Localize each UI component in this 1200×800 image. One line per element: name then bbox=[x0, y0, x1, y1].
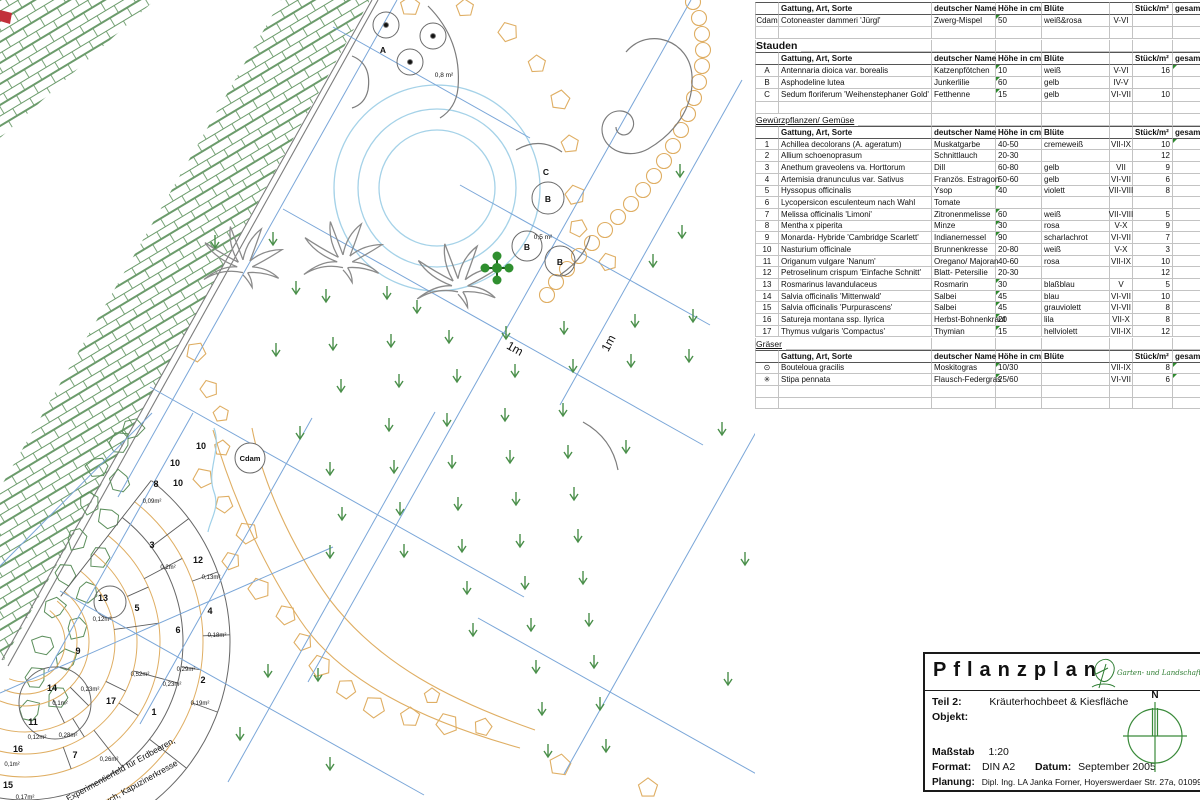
table-cell: B bbox=[755, 77, 779, 89]
format-label: Format: bbox=[932, 761, 971, 773]
table-cell: Salvia officinalis 'Purpurascens' bbox=[779, 302, 932, 314]
table-cell: Lycopersicon esculenteum nach Wahl bbox=[779, 197, 932, 209]
table-row bbox=[755, 386, 1200, 398]
table-cell bbox=[1110, 386, 1133, 398]
table-cell: Zitronenmelisse bbox=[932, 209, 996, 221]
north-label: N bbox=[1151, 690, 1158, 701]
bed-section-number: 6 bbox=[175, 625, 180, 635]
table-cell bbox=[1042, 338, 1110, 350]
table-cell bbox=[1042, 102, 1110, 114]
table-cell: 2 bbox=[1173, 232, 1200, 244]
table-cell: VII-VIII bbox=[1110, 209, 1133, 221]
table-cell: Herbst-Bohnenkraut bbox=[932, 314, 996, 326]
table-cell: 12 bbox=[1133, 267, 1173, 279]
table-cell: cremeweiß bbox=[1042, 139, 1110, 151]
bed-section-number: 13 bbox=[98, 593, 108, 603]
bed-area-label: 0,18m² bbox=[208, 633, 227, 639]
brick-wall-top-left bbox=[0, 0, 155, 138]
table-cell: gesamt bbox=[1173, 126, 1200, 139]
table-cell bbox=[1133, 102, 1173, 114]
table-cell bbox=[996, 338, 1042, 350]
table-cell: Brunnenkresse bbox=[932, 244, 996, 256]
table-cell bbox=[1042, 114, 1110, 126]
table-cell: 3 bbox=[1133, 244, 1173, 256]
plant-letter-label: A bbox=[380, 45, 386, 55]
table-section: StaudenGattung, Art, Sortedeutscher Name… bbox=[755, 40, 1200, 114]
table-cell bbox=[755, 398, 779, 410]
table-cell: blau bbox=[1042, 291, 1110, 303]
table-cell: Salbei bbox=[932, 291, 996, 303]
table-cell: gelb bbox=[1042, 89, 1110, 101]
garden-plan-drawing: Cdam 810101031213564914172111167150,09m²… bbox=[0, 0, 755, 800]
table-cell bbox=[779, 398, 932, 410]
table-cell: Höhe in cm bbox=[996, 350, 1042, 363]
table-cell: Sedum floriferum 'Weihenstephaner Gold' bbox=[779, 89, 932, 101]
table-cell: gelb bbox=[1042, 162, 1110, 174]
table-cell: 10 bbox=[755, 244, 779, 256]
table-cell bbox=[1110, 338, 1133, 350]
table-cell bbox=[755, 102, 779, 114]
table-cell: deutscher Name bbox=[932, 350, 996, 363]
table-cell bbox=[996, 398, 1042, 410]
table-cell: Blüte bbox=[1042, 126, 1110, 139]
table-cell: 5 bbox=[1133, 209, 1173, 221]
table-cell: 40-60 bbox=[996, 256, 1042, 268]
table-cell bbox=[1110, 27, 1133, 39]
table-cell bbox=[1110, 102, 1133, 114]
table-cell bbox=[1042, 398, 1110, 410]
table-cell: 13 bbox=[755, 279, 779, 291]
table-cell: 10 bbox=[996, 65, 1042, 77]
table-row: CSedum floriferum 'Weihenstephaner Gold'… bbox=[755, 89, 1200, 101]
table-cell: Stück/m² bbox=[1133, 350, 1173, 363]
bed-area-label: 0,2m² bbox=[160, 565, 175, 571]
table-cell: Tomate bbox=[932, 197, 996, 209]
table-cell: VI-VII bbox=[1110, 89, 1133, 101]
table-cell: Satureja montana ssp. Ilyrica bbox=[779, 314, 932, 326]
table-cell: 10 bbox=[1133, 256, 1173, 268]
table-cell: 5 bbox=[755, 186, 779, 198]
stream-line bbox=[208, 428, 216, 532]
table-cell: 3 bbox=[1173, 244, 1200, 256]
table-row: 6Lycopersicon esculenteum nach WahlTomat… bbox=[755, 197, 1200, 209]
dimension-1m-label: 1m bbox=[504, 338, 525, 358]
table-cell: V bbox=[1110, 279, 1133, 291]
table-cell: Achillea decolorans (A. ageratum) bbox=[779, 139, 932, 151]
table-cell: 8 bbox=[1133, 186, 1173, 198]
table-cell: VI-VII bbox=[1110, 232, 1133, 244]
table-cell: VII-IX bbox=[1110, 256, 1133, 268]
table-cell bbox=[1042, 267, 1110, 279]
table-cell: 10 bbox=[1133, 139, 1173, 151]
bed-section-number: 14 bbox=[47, 683, 57, 693]
table-cell: Origanum vulgare 'Nanum' bbox=[779, 256, 932, 268]
table-cell: Salvia officinalis 'Mittenwald' bbox=[779, 291, 932, 303]
table-cell bbox=[1173, 27, 1200, 39]
table-section-title: Gräser bbox=[756, 338, 786, 350]
table-cell: V-VI bbox=[1110, 15, 1133, 27]
table-cell: 9 bbox=[1133, 162, 1173, 174]
table-cell: VI-VII bbox=[1110, 291, 1133, 303]
table-cell bbox=[1110, 267, 1133, 279]
table-cell: 40-50 bbox=[996, 139, 1042, 151]
table-cell bbox=[932, 102, 996, 114]
table-section-title: Stauden bbox=[756, 40, 801, 52]
table-cell: 1 bbox=[1173, 279, 1200, 291]
table-cell: ✳ bbox=[755, 374, 779, 386]
pflanzplan-page: Cdam 810101031213564914172111167150,09m²… bbox=[0, 0, 1200, 800]
table-row: 3Anethum graveolens va. HorttorumDill60-… bbox=[755, 162, 1200, 174]
dimension-1m-label: 1m bbox=[598, 332, 618, 353]
table-cell bbox=[1110, 126, 1133, 139]
table-cell: Rosmarinus lavandulaceus bbox=[779, 279, 932, 291]
table-cell: Petroselinum crispum 'Einfache Schnitt' bbox=[779, 267, 932, 279]
table-cell: Salbei bbox=[932, 302, 996, 314]
table-cell: rosa bbox=[1042, 221, 1110, 233]
table-cell: 40 bbox=[996, 186, 1042, 198]
table-cell: 30 bbox=[996, 221, 1042, 233]
table-cell: Junkerlilie bbox=[932, 77, 996, 89]
table-cell: Hyssopus officinalis bbox=[779, 186, 932, 198]
wall-edge-line bbox=[2, 0, 378, 666]
table-cell: Bouteloua gracilis bbox=[779, 363, 932, 375]
table-section: Gewürzpflanzen/ GemüseGattung, Art, Sort… bbox=[755, 114, 1200, 338]
table-cell bbox=[1133, 15, 1173, 27]
table-cell: 12 bbox=[755, 267, 779, 279]
table-cell: weiß bbox=[1042, 244, 1110, 256]
table-cell: Rosmarin bbox=[932, 279, 996, 291]
table-cell bbox=[1110, 52, 1133, 65]
table-cell: Stück/m² bbox=[1133, 52, 1173, 65]
table-row: 17Thymus vulgaris 'Compactus'Thymian15he… bbox=[755, 326, 1200, 338]
datum-label: Datum: bbox=[1035, 761, 1071, 773]
table-cell: V-X bbox=[1110, 221, 1133, 233]
table-cell: Blatt- Petersilie bbox=[932, 267, 996, 279]
table-cell bbox=[932, 40, 996, 52]
table-cell: 90 bbox=[996, 232, 1042, 244]
table-row: 9Monarda- Hybride 'Cambridge Scarlett'In… bbox=[755, 232, 1200, 244]
table-cell: Stipa pennata bbox=[779, 374, 932, 386]
table-cell: 3 bbox=[1173, 374, 1200, 386]
table-cell: 10 bbox=[1133, 291, 1173, 303]
bed-section-number: 16 bbox=[13, 744, 23, 754]
herb-bed-dividers bbox=[53, 480, 230, 768]
table-cell bbox=[779, 102, 932, 114]
table-cell bbox=[996, 197, 1042, 209]
table-cell: V-VI bbox=[1110, 65, 1133, 77]
table-cell: VI-VII bbox=[1110, 302, 1133, 314]
teil-row: Teil 2: Kräuterhochbeet & Kiesfläche bbox=[932, 696, 1128, 708]
table-cell bbox=[1133, 77, 1173, 89]
table-cell: violett bbox=[1042, 186, 1110, 198]
table-cell: hellviolett bbox=[1042, 326, 1110, 338]
table-cell: 1 bbox=[1173, 314, 1200, 326]
table-cell: VII-IX bbox=[1110, 363, 1133, 375]
bed-section-number: 4 bbox=[207, 606, 212, 616]
table-cell: Antennaria dioica var. borealis bbox=[779, 65, 932, 77]
bed-outline-paisley bbox=[352, 6, 692, 470]
table-cell: 16 bbox=[1133, 65, 1173, 77]
table-cell: 9 bbox=[755, 232, 779, 244]
table-cell: lila bbox=[1042, 314, 1110, 326]
table-cell: ⊙ bbox=[755, 363, 779, 375]
table-cell: Mentha x piperita bbox=[779, 221, 932, 233]
table-cell: blaßblau bbox=[1042, 279, 1110, 291]
table-cell: Nasturium officinale bbox=[779, 244, 932, 256]
brick-wall-band bbox=[0, 0, 370, 660]
table-cell: 8 bbox=[1133, 314, 1173, 326]
table-row: 10Nasturium officinaleBrunnenkresse20-80… bbox=[755, 244, 1200, 256]
plant-letter-label: B bbox=[545, 194, 551, 204]
table-cell: 3 bbox=[755, 162, 779, 174]
table-section: Gattung, Art, Sortedeutscher NameHöhe in… bbox=[755, 2, 1200, 39]
table-row: 11Origanum vulgare 'Nanum'Oregano/ Major… bbox=[755, 256, 1200, 268]
table-cell: 5 bbox=[1173, 89, 1200, 101]
table-row: 15Salvia officinalis 'Purpurascens'Salbe… bbox=[755, 302, 1200, 314]
table-cell bbox=[1042, 27, 1110, 39]
table-cell: weiß bbox=[1042, 65, 1110, 77]
table-cell: 50 bbox=[996, 15, 1042, 27]
table-cell: 1 bbox=[1173, 291, 1200, 303]
table-cell: 15 bbox=[996, 326, 1042, 338]
table-cell: VII bbox=[1110, 162, 1133, 174]
bed-area-label: 0,19m² bbox=[191, 701, 210, 707]
table-row: 14Salvia officinalis 'Mittenwald'Salbei4… bbox=[755, 291, 1200, 303]
table-cell bbox=[1042, 40, 1110, 52]
table-cell: 45 bbox=[996, 291, 1042, 303]
company-logo-icon bbox=[1086, 656, 1118, 692]
table-cell: Blüte bbox=[1042, 2, 1110, 15]
plant-letter-label: B bbox=[524, 242, 530, 252]
table-cell: 45 bbox=[996, 302, 1042, 314]
table-row: Stauden bbox=[755, 40, 1200, 52]
table-cell: A bbox=[755, 65, 779, 77]
table-cell: 2 bbox=[1173, 150, 1200, 162]
table-cell: 3 bbox=[1173, 77, 1200, 89]
table-cell: 5 bbox=[1173, 197, 1200, 209]
bed-section-number: 7 bbox=[72, 750, 77, 760]
table-cell: 2 bbox=[755, 150, 779, 162]
table-cell: Gattung, Art, Sorte bbox=[779, 350, 932, 363]
table-cell: 12 bbox=[1133, 326, 1173, 338]
table-cell bbox=[932, 338, 996, 350]
table-row: 4Artemisia dranunculus var. SativusFranz… bbox=[755, 174, 1200, 186]
table-cell: 16 bbox=[755, 314, 779, 326]
table-cell: 30 bbox=[996, 279, 1042, 291]
table-cell bbox=[1133, 27, 1173, 39]
objekt-label: Objekt: bbox=[932, 711, 968, 723]
table-cell bbox=[755, 27, 779, 39]
table-cell: 1 bbox=[755, 139, 779, 151]
bed-section-number: 1 bbox=[151, 707, 156, 717]
table-cell: gelb bbox=[1042, 77, 1110, 89]
bed-section-number: 8 bbox=[153, 479, 158, 489]
table-row bbox=[755, 102, 1200, 114]
area-note-label: 0,8 m² bbox=[435, 72, 454, 79]
table-cell: 8 bbox=[1133, 363, 1173, 375]
table-cell: gesamt bbox=[1173, 2, 1200, 15]
table-row: 16Satureja montana ssp. IlyricaHerbst-Bo… bbox=[755, 314, 1200, 326]
table-cell: Ysop bbox=[932, 186, 996, 198]
table-header-row: Gattung, Art, Sortedeutscher NameHöhe in… bbox=[755, 126, 1200, 139]
table-cell bbox=[1042, 197, 1110, 209]
table-cell: 60 bbox=[996, 77, 1042, 89]
bed-area-label: 0,12m² bbox=[28, 735, 47, 741]
table-row: Gewürzpflanzen/ Gemüse bbox=[755, 114, 1200, 126]
table-cell: C bbox=[755, 89, 779, 101]
table-cell bbox=[1173, 40, 1200, 52]
table-cell bbox=[1042, 386, 1110, 398]
bed-area-label: 0,09m² bbox=[143, 499, 162, 505]
cdam-label: Cdam bbox=[240, 454, 261, 463]
table-header-row: Gattung, Art, Sortedeutscher NameHöhe in… bbox=[755, 350, 1200, 363]
bed-section-number: 9 bbox=[75, 646, 80, 656]
table-cell: 1 bbox=[1173, 15, 1200, 27]
table-cell: 11 bbox=[755, 256, 779, 268]
table-cell bbox=[1042, 374, 1110, 386]
table-cell: V-X bbox=[1110, 244, 1133, 256]
table-cell: deutscher Name bbox=[932, 52, 996, 65]
table-cell: 2 bbox=[1173, 302, 1200, 314]
gravel-swoosh bbox=[213, 428, 535, 748]
table-row: 12Petroselinum crispum 'Einfache Schnitt… bbox=[755, 267, 1200, 279]
table-cell bbox=[1133, 197, 1173, 209]
table-cell: Französ. Estragon bbox=[932, 174, 996, 186]
table-cell bbox=[755, 386, 779, 398]
table-cell bbox=[1110, 2, 1133, 15]
table-cell: 12 bbox=[1173, 65, 1200, 77]
table-cell: 60-80 bbox=[996, 162, 1042, 174]
table-cell bbox=[1110, 350, 1133, 363]
table-cell: 2 bbox=[1173, 209, 1200, 221]
table-cell: 20 bbox=[996, 314, 1042, 326]
table-cell: Zwerg-Mispel bbox=[932, 15, 996, 27]
table-cell bbox=[1042, 150, 1110, 162]
table-cell: Gattung, Art, Sorte bbox=[779, 52, 932, 65]
table-cell: Allium schoenoprasum bbox=[779, 150, 932, 162]
table-cell: Höhe in cm bbox=[996, 52, 1042, 65]
table-cell bbox=[996, 27, 1042, 39]
table-cell: 20-30 bbox=[996, 150, 1042, 162]
bed-area-label: 0,23m² bbox=[163, 682, 182, 688]
table-cell: 60 bbox=[996, 209, 1042, 221]
table-cell: Blüte bbox=[1042, 52, 1110, 65]
table-cell: 9 bbox=[1133, 221, 1173, 233]
bed-area-label: 0,23m² bbox=[81, 687, 100, 693]
table-cell bbox=[1133, 114, 1173, 126]
table-cell: 8 bbox=[755, 221, 779, 233]
massstab-value: 1:20 bbox=[988, 746, 1008, 758]
table-cell: 15 bbox=[755, 302, 779, 314]
bed-section-number: 5 bbox=[134, 603, 139, 613]
table-cell: 10/30 bbox=[996, 363, 1042, 375]
table-cell: 7 bbox=[1133, 232, 1173, 244]
table-cell bbox=[1133, 386, 1173, 398]
table-cell: Blüte bbox=[1042, 350, 1110, 363]
table-cell: Monarda- Hybride 'Cambridge Scarlett' bbox=[779, 232, 932, 244]
table-cell bbox=[779, 386, 932, 398]
table-cell: 2 bbox=[1173, 267, 1200, 279]
table-cell: Melissa officinalis 'Limoni' bbox=[779, 209, 932, 221]
bed-area-label: 0,28m² bbox=[59, 733, 78, 739]
bed-section-number: 10 bbox=[173, 478, 183, 488]
format-value: DIN A2 bbox=[982, 761, 1015, 773]
table-row: 2Allium schoenoprasumSchnittlauch20-3012… bbox=[755, 150, 1200, 162]
bed-section-number: 17 bbox=[106, 696, 116, 706]
company-name: Garten- und Landschaftsdesign bbox=[1117, 669, 1200, 677]
table-cell: deutscher Name bbox=[932, 126, 996, 139]
table-cell: 6 bbox=[755, 197, 779, 209]
north-compass: N bbox=[1122, 688, 1200, 780]
table-cell: grauviolett bbox=[1042, 302, 1110, 314]
table-cell: 2 bbox=[1173, 162, 1200, 174]
table-cell: Katzenpfötchen bbox=[932, 65, 996, 77]
table-cell bbox=[1173, 114, 1200, 126]
table-cell bbox=[1042, 363, 1110, 375]
table-cell: Schnittlauch bbox=[932, 150, 996, 162]
table-cell bbox=[1173, 386, 1200, 398]
table-section-title: Gewürzpflanzen/ Gemüse bbox=[756, 114, 858, 126]
table-cell: 10 bbox=[1133, 89, 1173, 101]
table-cell bbox=[1173, 102, 1200, 114]
table-cell: Asphodeline lutea bbox=[779, 77, 932, 89]
table-row: ⊙Bouteloua gracilisMoskitogras10/30VII-I… bbox=[755, 363, 1200, 375]
table-cell bbox=[1110, 114, 1133, 126]
table-cell: Höhe in cm bbox=[996, 126, 1042, 139]
bed-area-label: 0,26m² bbox=[100, 757, 119, 763]
planung-label: Planung: bbox=[932, 777, 975, 788]
massstab-label: Maßstab bbox=[932, 746, 975, 758]
table-cell: 15 bbox=[996, 89, 1042, 101]
table-cell bbox=[932, 114, 996, 126]
bed-section-number: 10 bbox=[170, 458, 180, 468]
table-cell: weiß bbox=[1042, 209, 1110, 221]
table-row: 5Hyssopus officinalisYsop40violettVII-VI… bbox=[755, 186, 1200, 198]
table-cell: IV-V bbox=[1110, 77, 1133, 89]
bed-area-label: 0,29m² bbox=[177, 667, 196, 673]
table-cell: VI-VII bbox=[1110, 174, 1133, 186]
table-cell: 17 bbox=[755, 326, 779, 338]
table-cell bbox=[1173, 338, 1200, 350]
table-cell: Stück/m² bbox=[1133, 126, 1173, 139]
massstab-row: Maßstab 1:20 bbox=[932, 746, 1009, 758]
table-row: 13Rosmarinus lavandulaceusRosmarin30blaß… bbox=[755, 279, 1200, 291]
table-cell: Gattung, Art, Sorte bbox=[779, 126, 932, 139]
table-cell: Stück/m² bbox=[1133, 2, 1173, 15]
bed-section-number: 12 bbox=[193, 555, 203, 565]
table-cell: gesamt bbox=[1173, 52, 1200, 65]
table-cell bbox=[1133, 398, 1173, 410]
table-cell: 6 bbox=[1133, 174, 1173, 186]
table-cell bbox=[1110, 150, 1133, 162]
table-cell: Cdam bbox=[755, 15, 779, 27]
table-cell: Thymus vulgaris 'Compactus' bbox=[779, 326, 932, 338]
table-cell bbox=[755, 350, 779, 363]
table-row: BAsphodeline luteaJunkerlilie60gelbIV-V3 bbox=[755, 77, 1200, 89]
table-cell: gelb bbox=[1042, 174, 1110, 186]
table-cell: VII-IX bbox=[1110, 326, 1133, 338]
bed-area-label: 0,13m² bbox=[202, 575, 221, 581]
table-section: GräserGattung, Art, Sortedeutscher NameH… bbox=[755, 338, 1200, 410]
table-cell: VI-VII bbox=[1110, 374, 1133, 386]
table-cell bbox=[932, 398, 996, 410]
table-header-row: Gattung, Art, Sortedeutscher NameHöhe in… bbox=[755, 2, 1200, 15]
table-cell: VII-VIII bbox=[1110, 186, 1133, 198]
table-cell: 2 bbox=[1173, 139, 1200, 151]
table-cell: scharlachrot bbox=[1042, 232, 1110, 244]
table-cell bbox=[996, 386, 1042, 398]
table-cell: 4 bbox=[1173, 326, 1200, 338]
